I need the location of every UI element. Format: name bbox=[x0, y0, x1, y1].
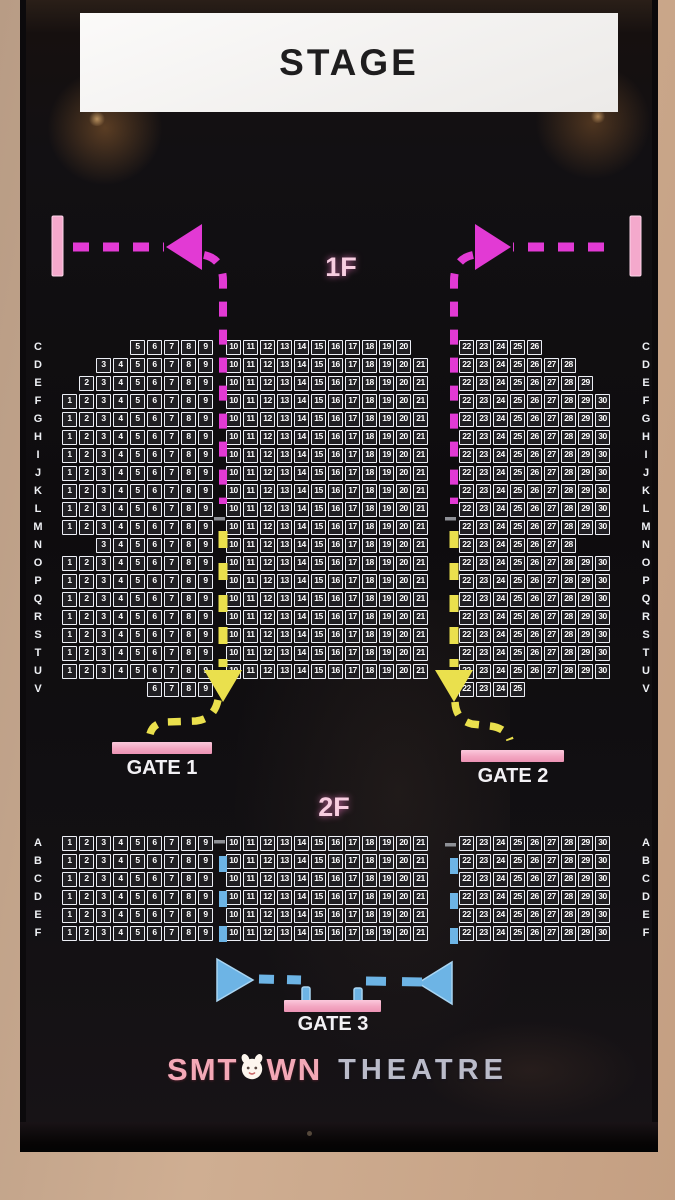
seat-block-left: 56789 bbox=[60, 340, 213, 355]
seat-block-left: 6789 bbox=[60, 682, 213, 697]
seat: 7 bbox=[164, 466, 179, 481]
seat: 16 bbox=[328, 872, 343, 887]
seat: 23 bbox=[476, 538, 491, 553]
row-label-left: R bbox=[30, 610, 46, 625]
seat: 8 bbox=[181, 340, 196, 355]
seat: 18 bbox=[362, 484, 377, 499]
seat: 1 bbox=[62, 836, 77, 851]
seat-block-right: 22232425262728 bbox=[459, 538, 612, 553]
seat: 13 bbox=[277, 484, 292, 499]
seat: 30 bbox=[595, 836, 610, 851]
seat: 7 bbox=[164, 592, 179, 607]
seat: 18 bbox=[362, 872, 377, 887]
seat: 22 bbox=[459, 502, 474, 517]
row-label-right: H bbox=[638, 430, 654, 445]
seat: 1 bbox=[62, 664, 77, 679]
seat: 26 bbox=[527, 628, 542, 643]
seat: 23 bbox=[476, 340, 491, 355]
seat: 8 bbox=[181, 358, 196, 373]
seat: 24 bbox=[493, 358, 508, 373]
seat: 14 bbox=[294, 538, 309, 553]
seat: 22 bbox=[459, 358, 474, 373]
seat: 9 bbox=[198, 556, 213, 571]
seat: 4 bbox=[113, 502, 128, 517]
seat: 29 bbox=[578, 502, 593, 517]
seat: 1 bbox=[62, 646, 77, 661]
seat: 12 bbox=[260, 556, 275, 571]
seat: 6 bbox=[147, 854, 162, 869]
seat: 16 bbox=[328, 520, 343, 535]
seat: 28 bbox=[561, 574, 576, 589]
seat: 15 bbox=[311, 556, 326, 571]
seat-row-1f-N: N345678910111213141516171819202122232425… bbox=[30, 538, 654, 553]
seat: 19 bbox=[379, 664, 394, 679]
seat: 8 bbox=[181, 926, 196, 941]
seat: 22 bbox=[459, 682, 474, 697]
seat: 7 bbox=[164, 646, 179, 661]
seat: 13 bbox=[277, 340, 292, 355]
seat: 7 bbox=[164, 926, 179, 941]
seat: 15 bbox=[311, 466, 326, 481]
seat: 26 bbox=[527, 466, 542, 481]
seat: 13 bbox=[277, 556, 292, 571]
seat: 9 bbox=[198, 502, 213, 517]
seat-block-left: 123456789 bbox=[60, 664, 213, 679]
seat: 22 bbox=[459, 610, 474, 625]
seat: 20 bbox=[396, 520, 411, 535]
seat: 14 bbox=[294, 448, 309, 463]
seat: 5 bbox=[130, 628, 145, 643]
seat: 6 bbox=[147, 448, 162, 463]
seat: 28 bbox=[561, 628, 576, 643]
seat: 11 bbox=[243, 926, 258, 941]
seat: 10 bbox=[226, 646, 241, 661]
seat-block-left: 123456789 bbox=[60, 646, 213, 661]
seat: 20 bbox=[396, 430, 411, 445]
seat: 24 bbox=[493, 394, 508, 409]
seat: 28 bbox=[561, 376, 576, 391]
seat: 5 bbox=[130, 890, 145, 905]
seat: 4 bbox=[113, 854, 128, 869]
seat: 25 bbox=[510, 448, 525, 463]
seat: 18 bbox=[362, 394, 377, 409]
seat: 28 bbox=[561, 430, 576, 445]
seat: 4 bbox=[113, 394, 128, 409]
seat: 24 bbox=[493, 610, 508, 625]
seat: 21 bbox=[413, 574, 428, 589]
seat: 13 bbox=[277, 836, 292, 851]
seat-row-1f-U: U123456789101112131415161718192021222324… bbox=[30, 664, 654, 679]
seat: 10 bbox=[226, 430, 241, 445]
seat: 23 bbox=[476, 376, 491, 391]
seat: 27 bbox=[544, 908, 559, 923]
seat: 20 bbox=[396, 502, 411, 517]
seat-row-1f-S: S123456789101112131415161718192021222324… bbox=[30, 628, 654, 643]
seat: 12 bbox=[260, 340, 275, 355]
seat-block-left: 123456789 bbox=[60, 836, 213, 851]
seat: 9 bbox=[198, 646, 213, 661]
seat: 30 bbox=[595, 430, 610, 445]
seat-block-right: 222324252627282930 bbox=[459, 628, 612, 643]
seat: 14 bbox=[294, 908, 309, 923]
seat: 12 bbox=[260, 448, 275, 463]
seat: 28 bbox=[561, 836, 576, 851]
seat: 9 bbox=[198, 664, 213, 679]
row-label-left: D bbox=[30, 890, 46, 905]
seat: 29 bbox=[578, 574, 593, 589]
seat: 26 bbox=[527, 646, 542, 661]
seat: 23 bbox=[476, 926, 491, 941]
seat: 26 bbox=[527, 340, 542, 355]
seat: 30 bbox=[595, 646, 610, 661]
seat: 15 bbox=[311, 538, 326, 553]
seat: 16 bbox=[328, 466, 343, 481]
seat: 30 bbox=[595, 872, 610, 887]
seat: 26 bbox=[527, 908, 542, 923]
seat: 2 bbox=[79, 610, 94, 625]
seat-row-1f-C: C5678910111213141516171819202223242526C bbox=[30, 340, 654, 355]
seat: 5 bbox=[130, 520, 145, 535]
seat: 4 bbox=[113, 466, 128, 481]
seat: 8 bbox=[181, 628, 196, 643]
seat-block-right: 222324252627282930 bbox=[459, 556, 612, 571]
seat: 13 bbox=[277, 466, 292, 481]
seat: 18 bbox=[362, 466, 377, 481]
seat: 22 bbox=[459, 394, 474, 409]
seat: 10 bbox=[226, 628, 241, 643]
seat: 20 bbox=[396, 574, 411, 589]
seat: 25 bbox=[510, 610, 525, 625]
seat: 6 bbox=[147, 484, 162, 499]
seat: 25 bbox=[510, 394, 525, 409]
seat-block-center: 101112131415161718192021 bbox=[226, 592, 430, 607]
seat: 25 bbox=[510, 646, 525, 661]
seat: 8 bbox=[181, 538, 196, 553]
row-label-left: C bbox=[30, 872, 46, 887]
row-label-left: V bbox=[30, 682, 46, 697]
row-label-right: M bbox=[638, 520, 654, 535]
row-label-left: Q bbox=[30, 592, 46, 607]
seat: 25 bbox=[510, 682, 525, 697]
seat: 29 bbox=[578, 872, 593, 887]
seat: 17 bbox=[345, 376, 360, 391]
seat-row-1f-F: F123456789101112131415161718192021222324… bbox=[30, 394, 654, 409]
seat: 21 bbox=[413, 556, 428, 571]
seat: 4 bbox=[113, 538, 128, 553]
seat: 15 bbox=[311, 854, 326, 869]
seat: 10 bbox=[226, 556, 241, 571]
seat: 30 bbox=[595, 448, 610, 463]
seat: 22 bbox=[459, 448, 474, 463]
seat: 9 bbox=[198, 854, 213, 869]
seat: 18 bbox=[362, 538, 377, 553]
seat: 8 bbox=[181, 592, 196, 607]
seat: 6 bbox=[147, 358, 162, 373]
seat-row-1f-E: E234567891011121314151617181920212223242… bbox=[30, 376, 654, 391]
seat: 4 bbox=[113, 592, 128, 607]
seat: 1 bbox=[62, 466, 77, 481]
row-label-left: A bbox=[30, 836, 46, 851]
seat: 9 bbox=[198, 394, 213, 409]
seat: 25 bbox=[510, 908, 525, 923]
seat-block-left: 123456789 bbox=[60, 466, 213, 481]
seat: 22 bbox=[459, 412, 474, 427]
seat: 5 bbox=[130, 926, 145, 941]
seat: 22 bbox=[459, 430, 474, 445]
seat: 30 bbox=[595, 610, 610, 625]
seat-block-left: 123456789 bbox=[60, 926, 213, 941]
seat: 22 bbox=[459, 628, 474, 643]
seat: 19 bbox=[379, 412, 394, 427]
seat: 8 bbox=[181, 854, 196, 869]
seat: 17 bbox=[345, 890, 360, 905]
seat-block-left: 123456789 bbox=[60, 890, 213, 905]
seat: 26 bbox=[527, 556, 542, 571]
seat: 17 bbox=[345, 466, 360, 481]
seat: 29 bbox=[578, 926, 593, 941]
seat: 30 bbox=[595, 926, 610, 941]
seat: 5 bbox=[130, 908, 145, 923]
seat: 9 bbox=[198, 448, 213, 463]
seat: 26 bbox=[527, 592, 542, 607]
seat: 13 bbox=[277, 592, 292, 607]
seat: 30 bbox=[595, 628, 610, 643]
seat: 6 bbox=[147, 836, 162, 851]
seat: 17 bbox=[345, 412, 360, 427]
seat: 22 bbox=[459, 908, 474, 923]
seat: 3 bbox=[96, 574, 111, 589]
row-label-right: T bbox=[638, 646, 654, 661]
row-label-right: U bbox=[638, 664, 654, 679]
seat: 22 bbox=[459, 466, 474, 481]
seat: 30 bbox=[595, 502, 610, 517]
seat-block-center bbox=[226, 682, 430, 697]
seat: 19 bbox=[379, 430, 394, 445]
seat: 30 bbox=[595, 890, 610, 905]
seat: 6 bbox=[147, 394, 162, 409]
seat: 7 bbox=[164, 448, 179, 463]
seat: 24 bbox=[493, 340, 508, 355]
seat: 17 bbox=[345, 394, 360, 409]
seat: 2 bbox=[79, 484, 94, 499]
seat: 14 bbox=[294, 664, 309, 679]
seat: 29 bbox=[578, 628, 593, 643]
seat: 4 bbox=[113, 836, 128, 851]
seat: 29 bbox=[578, 520, 593, 535]
seat: 5 bbox=[130, 592, 145, 607]
seat: 17 bbox=[345, 484, 360, 499]
seat: 14 bbox=[294, 836, 309, 851]
seat: 1 bbox=[62, 394, 77, 409]
seat: 23 bbox=[476, 836, 491, 851]
seat: 6 bbox=[147, 430, 162, 445]
seat: 22 bbox=[459, 646, 474, 661]
seat-block-center: 101112131415161718192021 bbox=[226, 538, 430, 553]
seat: 20 bbox=[396, 908, 411, 923]
seat: 24 bbox=[493, 430, 508, 445]
seat: 26 bbox=[527, 520, 542, 535]
seat: 21 bbox=[413, 538, 428, 553]
floor-1f-label: 1F bbox=[302, 252, 380, 283]
seat: 23 bbox=[476, 872, 491, 887]
seat: 26 bbox=[527, 890, 542, 905]
seat: 16 bbox=[328, 502, 343, 517]
seat-block-left: 123456789 bbox=[60, 430, 213, 445]
seat: 30 bbox=[595, 574, 610, 589]
seat-row-1f-O: O123456789101112131415161718192021222324… bbox=[30, 556, 654, 571]
seat-row-1f-Q: Q123456789101112131415161718192021222324… bbox=[30, 592, 654, 607]
seat: 5 bbox=[130, 502, 145, 517]
seat: 4 bbox=[113, 646, 128, 661]
seat: 8 bbox=[181, 448, 196, 463]
seat: 28 bbox=[561, 556, 576, 571]
seat: 10 bbox=[226, 610, 241, 625]
row-label-left: I bbox=[30, 448, 46, 463]
seat: 20 bbox=[396, 610, 411, 625]
seat: 11 bbox=[243, 448, 258, 463]
seat: 10 bbox=[226, 484, 241, 499]
seat: 1 bbox=[62, 610, 77, 625]
seat: 19 bbox=[379, 926, 394, 941]
brand-logo: SMT WN THEATRE bbox=[0, 1052, 675, 1088]
row-label-right: S bbox=[638, 628, 654, 643]
seat: 9 bbox=[198, 520, 213, 535]
row-label-right: F bbox=[638, 394, 654, 409]
seat: 30 bbox=[595, 412, 610, 427]
seat: 5 bbox=[130, 358, 145, 373]
seat: 5 bbox=[130, 556, 145, 571]
seat-block-left: 123456789 bbox=[60, 520, 213, 535]
seat: 5 bbox=[130, 664, 145, 679]
seat-block-right: 222324252627282930 bbox=[459, 520, 612, 535]
seat: 29 bbox=[578, 854, 593, 869]
seat: 7 bbox=[164, 872, 179, 887]
seat: 17 bbox=[345, 448, 360, 463]
seat: 5 bbox=[130, 854, 145, 869]
seat: 2 bbox=[79, 872, 94, 887]
seat: 28 bbox=[561, 412, 576, 427]
seat: 28 bbox=[561, 520, 576, 535]
seat: 22 bbox=[459, 854, 474, 869]
seat: 21 bbox=[413, 926, 428, 941]
seat: 15 bbox=[311, 610, 326, 625]
seat: 27 bbox=[544, 448, 559, 463]
seat: 25 bbox=[510, 664, 525, 679]
seat: 13 bbox=[277, 430, 292, 445]
seat-block-center: 101112131415161718192021 bbox=[226, 394, 430, 409]
seat: 11 bbox=[243, 394, 258, 409]
seat: 2 bbox=[79, 836, 94, 851]
seat-row-1f-V: V678922232425V bbox=[30, 682, 654, 697]
seat: 23 bbox=[476, 502, 491, 517]
seat: 7 bbox=[164, 556, 179, 571]
seat: 20 bbox=[396, 376, 411, 391]
seat: 3 bbox=[96, 358, 111, 373]
seat: 14 bbox=[294, 412, 309, 427]
seat: 17 bbox=[345, 538, 360, 553]
seat: 2 bbox=[79, 664, 94, 679]
row-label-right: O bbox=[638, 556, 654, 571]
row-label-right: L bbox=[638, 502, 654, 517]
seat: 4 bbox=[113, 908, 128, 923]
seat: 3 bbox=[96, 854, 111, 869]
seat: 23 bbox=[476, 664, 491, 679]
seat: 6 bbox=[147, 376, 162, 391]
seat: 12 bbox=[260, 610, 275, 625]
seat: 19 bbox=[379, 358, 394, 373]
seat: 17 bbox=[345, 908, 360, 923]
seat: 24 bbox=[493, 592, 508, 607]
seat-row-2f-F: F123456789101112131415161718192021222324… bbox=[30, 926, 654, 941]
row-label-left: S bbox=[30, 628, 46, 643]
seat: 3 bbox=[96, 502, 111, 517]
seat: 28 bbox=[561, 854, 576, 869]
seat: 8 bbox=[181, 890, 196, 905]
row-label-left: B bbox=[30, 854, 46, 869]
seat: 13 bbox=[277, 394, 292, 409]
seat: 8 bbox=[181, 646, 196, 661]
seat: 13 bbox=[277, 574, 292, 589]
seat: 22 bbox=[459, 664, 474, 679]
seat-block-center: 101112131415161718192021 bbox=[226, 890, 430, 905]
seat: 10 bbox=[226, 466, 241, 481]
seat: 16 bbox=[328, 908, 343, 923]
seat: 5 bbox=[130, 430, 145, 445]
seat: 21 bbox=[413, 628, 428, 643]
row-label-left: H bbox=[30, 430, 46, 445]
seat-block-center: 101112131415161718192021 bbox=[226, 358, 430, 373]
seat: 21 bbox=[413, 908, 428, 923]
seat: 12 bbox=[260, 628, 275, 643]
seat: 18 bbox=[362, 890, 377, 905]
seat: 30 bbox=[595, 556, 610, 571]
seat: 21 bbox=[413, 520, 428, 535]
seat: 10 bbox=[226, 340, 241, 355]
seat: 6 bbox=[147, 340, 162, 355]
seat: 19 bbox=[379, 502, 394, 517]
seat: 26 bbox=[527, 448, 542, 463]
seat: 18 bbox=[362, 664, 377, 679]
seat: 8 bbox=[181, 556, 196, 571]
seat: 9 bbox=[198, 836, 213, 851]
seat: 19 bbox=[379, 836, 394, 851]
seat: 16 bbox=[328, 628, 343, 643]
seat: 25 bbox=[510, 628, 525, 643]
row-label-left: N bbox=[30, 538, 46, 553]
seat: 11 bbox=[243, 664, 258, 679]
seat: 28 bbox=[561, 484, 576, 499]
seat: 23 bbox=[476, 448, 491, 463]
seat: 27 bbox=[544, 890, 559, 905]
seat: 12 bbox=[260, 836, 275, 851]
seat: 16 bbox=[328, 538, 343, 553]
seat-block-center: 101112131415161718192021 bbox=[226, 664, 430, 679]
seat: 14 bbox=[294, 520, 309, 535]
seat: 29 bbox=[578, 890, 593, 905]
seat: 4 bbox=[113, 890, 128, 905]
seat-block-right: 222324252627282930 bbox=[459, 502, 612, 517]
seat: 20 bbox=[396, 358, 411, 373]
seatmap-1f: C5678910111213141516171819202223242526CD… bbox=[30, 340, 654, 700]
seat: 21 bbox=[413, 394, 428, 409]
floor-2f-label: 2F bbox=[295, 792, 373, 823]
seat: 23 bbox=[476, 854, 491, 869]
seat: 26 bbox=[527, 412, 542, 427]
seat: 24 bbox=[493, 836, 508, 851]
seat: 25 bbox=[510, 340, 525, 355]
seat: 24 bbox=[493, 890, 508, 905]
seat: 26 bbox=[527, 872, 542, 887]
